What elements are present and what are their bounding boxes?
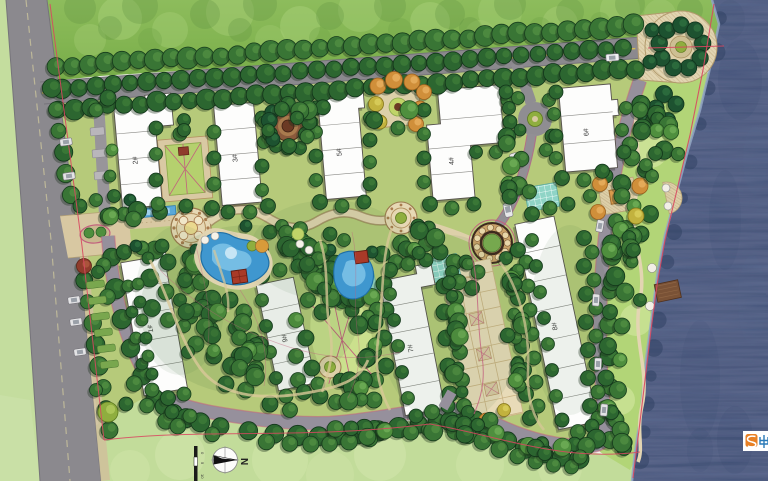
svg-text:4#: 4#: [448, 157, 456, 165]
svg-text:2#: 2#: [132, 156, 140, 164]
svg-text:3#: 3#: [232, 154, 240, 162]
svg-text:N: N: [238, 458, 249, 465]
svg-text:5#: 5#: [336, 148, 344, 156]
svg-text:10: 10: [200, 474, 205, 479]
svg-text:6#: 6#: [583, 128, 591, 136]
